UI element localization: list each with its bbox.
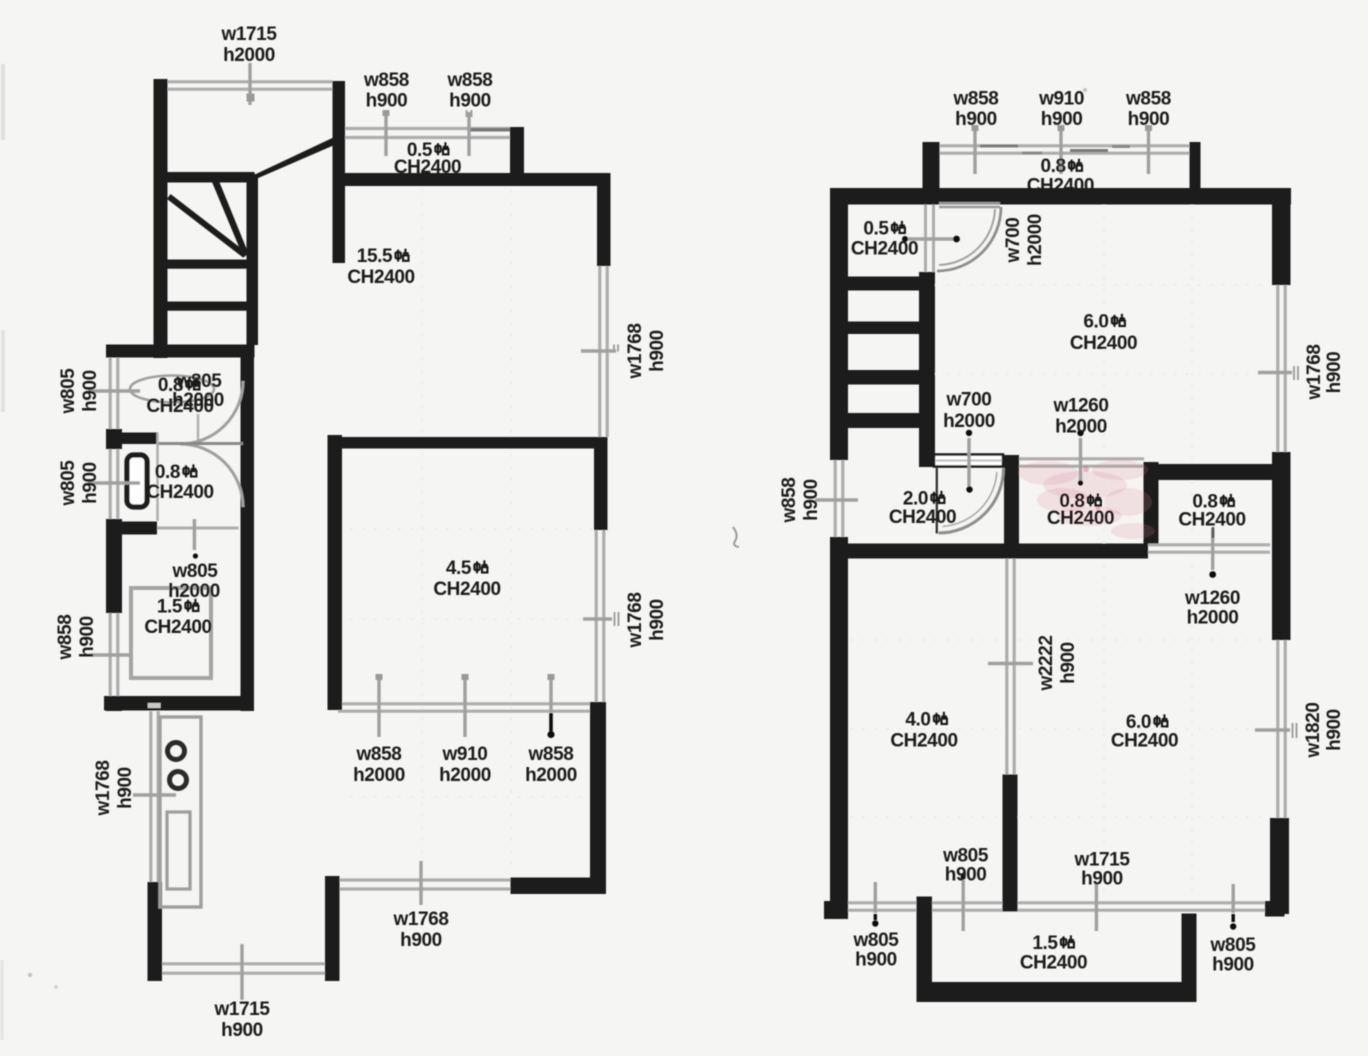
svg-text:h2000: h2000 [1055, 416, 1107, 437]
svg-text:w858: w858 [363, 70, 409, 91]
svg-text:h900: h900 [801, 479, 822, 521]
svg-text:w805: w805 [172, 561, 219, 582]
svg-text:CH2400: CH2400 [433, 579, 500, 600]
svg-text:CH2400: CH2400 [1047, 508, 1114, 529]
svg-text:w1260: w1260 [1052, 395, 1108, 416]
svg-text:w700: w700 [1003, 218, 1024, 264]
svg-text:w910: w910 [1038, 89, 1084, 110]
svg-text:CH2400: CH2400 [347, 267, 414, 288]
svg-text:h2000: h2000 [439, 765, 491, 786]
svg-text:h900: h900 [80, 370, 101, 412]
svg-text:w858: w858 [356, 744, 402, 765]
svg-text:CH2400: CH2400 [1070, 333, 1137, 354]
svg-text:h900: h900 [366, 91, 408, 112]
svg-text:h900: h900 [855, 949, 897, 970]
svg-text:CH2400: CH2400 [851, 238, 918, 259]
svg-text:w1715: w1715 [213, 999, 270, 1020]
svg-text:w1768: w1768 [625, 323, 646, 379]
svg-text:1.5: 1.5 [157, 596, 183, 617]
svg-text:h900: h900 [1081, 868, 1123, 889]
svg-text:w858: w858 [447, 70, 493, 91]
svg-text:4.0: 4.0 [905, 709, 930, 730]
svg-text:w805: w805 [58, 368, 79, 415]
svg-text:w1715: w1715 [220, 24, 277, 45]
svg-text:w700: w700 [946, 389, 992, 410]
svg-text:h900: h900 [400, 930, 442, 951]
svg-text:h900: h900 [1212, 954, 1254, 975]
svg-text:h900: h900 [1324, 352, 1345, 394]
svg-text:w1260: w1260 [1184, 588, 1240, 609]
svg-text:CH2400: CH2400 [1020, 952, 1087, 973]
svg-text:h900: h900 [1041, 109, 1083, 130]
svg-text:CH2400: CH2400 [146, 482, 213, 503]
svg-text:CH2400: CH2400 [1178, 509, 1245, 530]
svg-text:w805: w805 [58, 460, 79, 507]
svg-text:w1768: w1768 [93, 760, 114, 816]
svg-text:w805: w805 [176, 371, 223, 392]
svg-text:w1768: w1768 [625, 592, 646, 648]
svg-text:h2000: h2000 [172, 390, 224, 411]
svg-text:0.5: 0.5 [863, 218, 889, 239]
svg-text:w910: w910 [442, 744, 488, 765]
svg-text:w858: w858 [953, 89, 999, 110]
svg-text:w1768: w1768 [392, 909, 448, 930]
svg-text:CH2400: CH2400 [1027, 176, 1094, 197]
svg-text:h2000: h2000 [943, 411, 995, 432]
svg-text:0.8: 0.8 [1040, 156, 1065, 177]
svg-text:w805: w805 [853, 930, 900, 951]
svg-text:h900: h900 [1058, 642, 1079, 684]
svg-text:h2000: h2000 [1025, 214, 1046, 266]
svg-text:h900: h900 [1324, 709, 1345, 751]
svg-text:h900: h900 [221, 1020, 263, 1041]
svg-text:0.8: 0.8 [155, 462, 180, 483]
svg-text:w858: w858 [1125, 89, 1171, 110]
svg-text:CH2400: CH2400 [890, 730, 957, 751]
svg-text:h2000: h2000 [1187, 607, 1239, 628]
svg-text:CH2400: CH2400 [144, 617, 211, 638]
svg-text:h900: h900 [77, 616, 98, 658]
svg-text:h900: h900 [449, 91, 491, 112]
svg-text:h900: h900 [1128, 109, 1170, 130]
svg-text:w858: w858 [779, 478, 800, 524]
svg-text:h900: h900 [647, 330, 668, 372]
svg-text:w858: w858 [528, 744, 574, 765]
svg-text:4.5: 4.5 [446, 558, 472, 579]
svg-text:w805: w805 [942, 845, 989, 866]
svg-text:w1820: w1820 [1303, 702, 1324, 758]
svg-text:h900: h900 [945, 864, 987, 885]
svg-text:w1715: w1715 [1073, 849, 1130, 870]
svg-text:CH2400: CH2400 [394, 157, 461, 178]
svg-text:h900: h900 [647, 599, 668, 641]
svg-text:h2000: h2000 [525, 765, 577, 786]
svg-text:6.0: 6.0 [1083, 311, 1108, 332]
svg-text:CH2400: CH2400 [889, 507, 956, 528]
svg-text:h2000: h2000 [353, 765, 405, 786]
svg-text:w1768: w1768 [1304, 344, 1325, 400]
svg-text:h900: h900 [80, 462, 101, 504]
svg-text:w858: w858 [55, 615, 76, 661]
svg-text:CH2400: CH2400 [1111, 730, 1178, 751]
svg-text:w2222: w2222 [1036, 635, 1057, 691]
svg-text:15.5: 15.5 [357, 246, 393, 267]
svg-text:h2000: h2000 [223, 45, 275, 66]
svg-text:h900: h900 [115, 767, 136, 809]
svg-text:h900: h900 [955, 109, 997, 130]
svg-text:w805: w805 [1210, 935, 1257, 956]
svg-text:1.5: 1.5 [1032, 933, 1058, 954]
